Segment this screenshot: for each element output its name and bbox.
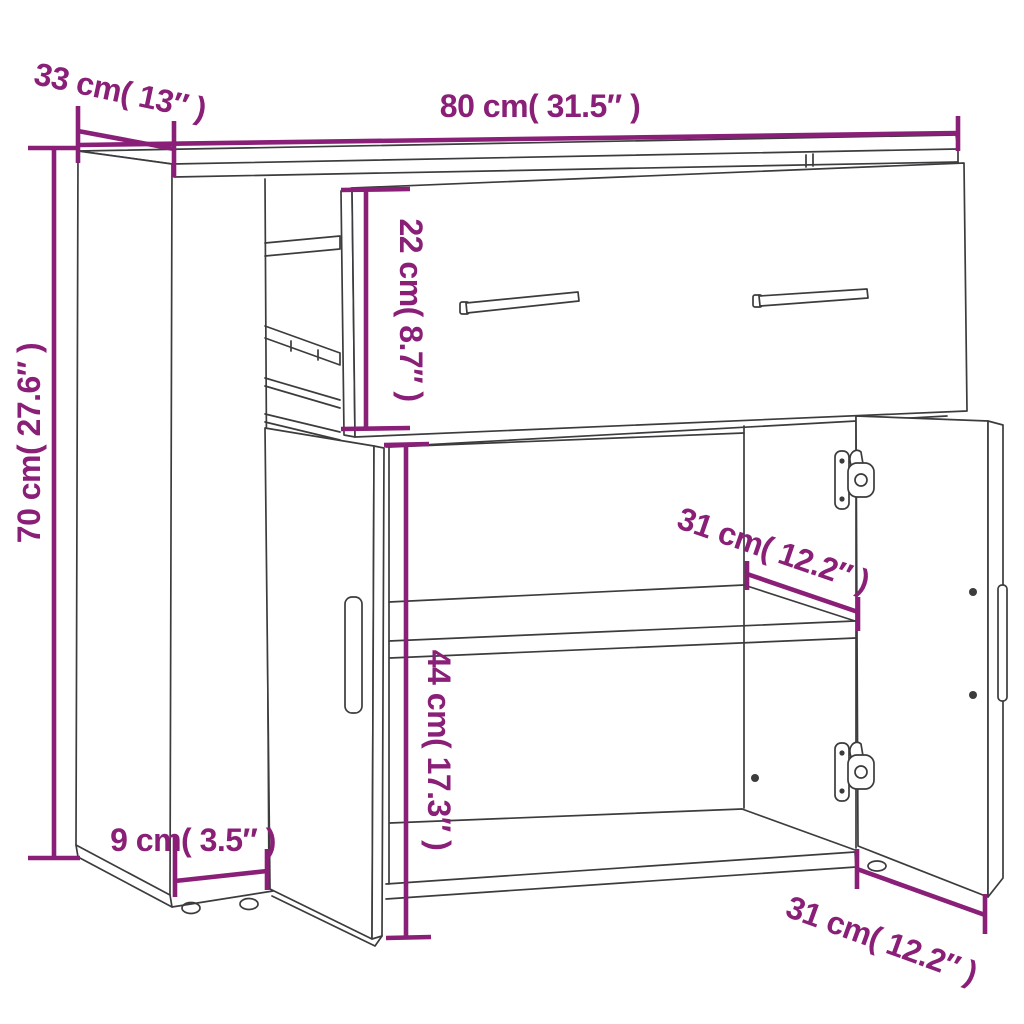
dim-top-width: 80 cm( 31.5″ ) [78, 88, 958, 151]
rail-1 [265, 236, 340, 256]
right-door [856, 416, 1007, 897]
dim-shelf-depth: 31 cm( 12.2″ ) [673, 500, 874, 631]
right-wall-bottom-edge [742, 809, 855, 850]
door-screw-hole-top [969, 588, 977, 596]
left-panel-face [76, 151, 172, 895]
hinge-screw [839, 496, 844, 501]
right-door-handle [998, 585, 1007, 701]
hinge-screw [839, 788, 844, 793]
top-front-edge [172, 149, 957, 164]
foot-middle [240, 899, 258, 910]
dim-door-compartment-height: 44 cm( 17.3″ ) [384, 444, 457, 938]
rail-2 [265, 326, 340, 365]
shelf-front-bottom-edge [390, 638, 856, 658]
left-door [265, 428, 384, 946]
shelf-pin-hole [751, 774, 759, 782]
dim-door-compartment-height-label: 44 cm( 17.3″ ) [421, 650, 457, 850]
left-door-edge-band [372, 446, 384, 939]
dim-overall-height: 70 cm( 27.6″ ) [11, 148, 80, 858]
dim-drawer-height-label: 22 cm( 8.7″ ) [393, 218, 429, 401]
base-front-bottom-edge [386, 852, 856, 899]
right-door-face [856, 416, 988, 897]
drawer [341, 163, 967, 437]
foot-right [868, 861, 886, 871]
hinge-screw [839, 750, 844, 755]
left-side-panel [76, 151, 172, 907]
hinge-cup [848, 755, 874, 789]
door-screw-hole-bottom [969, 691, 977, 699]
left-door-handle [345, 597, 362, 713]
shelf-back-edge [389, 585, 744, 602]
rail-3 [265, 378, 340, 408]
drawer-front [352, 163, 967, 437]
dim-plinth-depth-label: 9 cm( 3.5″ ) [110, 822, 276, 858]
hinge-cup [848, 463, 874, 497]
floor [390, 809, 855, 850]
hinge-screw [839, 458, 844, 463]
dim-line [175, 871, 267, 881]
dim-top-depth-label: 33 cm( 13″ ) [31, 55, 209, 127]
dimension-diagram: 80 cm( 31.5″ ) 33 cm( 13″ ) 70 cm( 27.6″… [0, 0, 1024, 1024]
mid-rail-inner-edge [389, 433, 744, 447]
dim-overall-height-label: 70 cm( 27.6″ ) [11, 343, 47, 543]
base-front-top-edge [386, 852, 855, 884]
shelf [389, 585, 856, 658]
drawer-rails [265, 236, 340, 440]
shelf-front-top-edge [389, 621, 855, 641]
dim-top-width-label: 80 cm( 31.5″ ) [440, 88, 640, 124]
